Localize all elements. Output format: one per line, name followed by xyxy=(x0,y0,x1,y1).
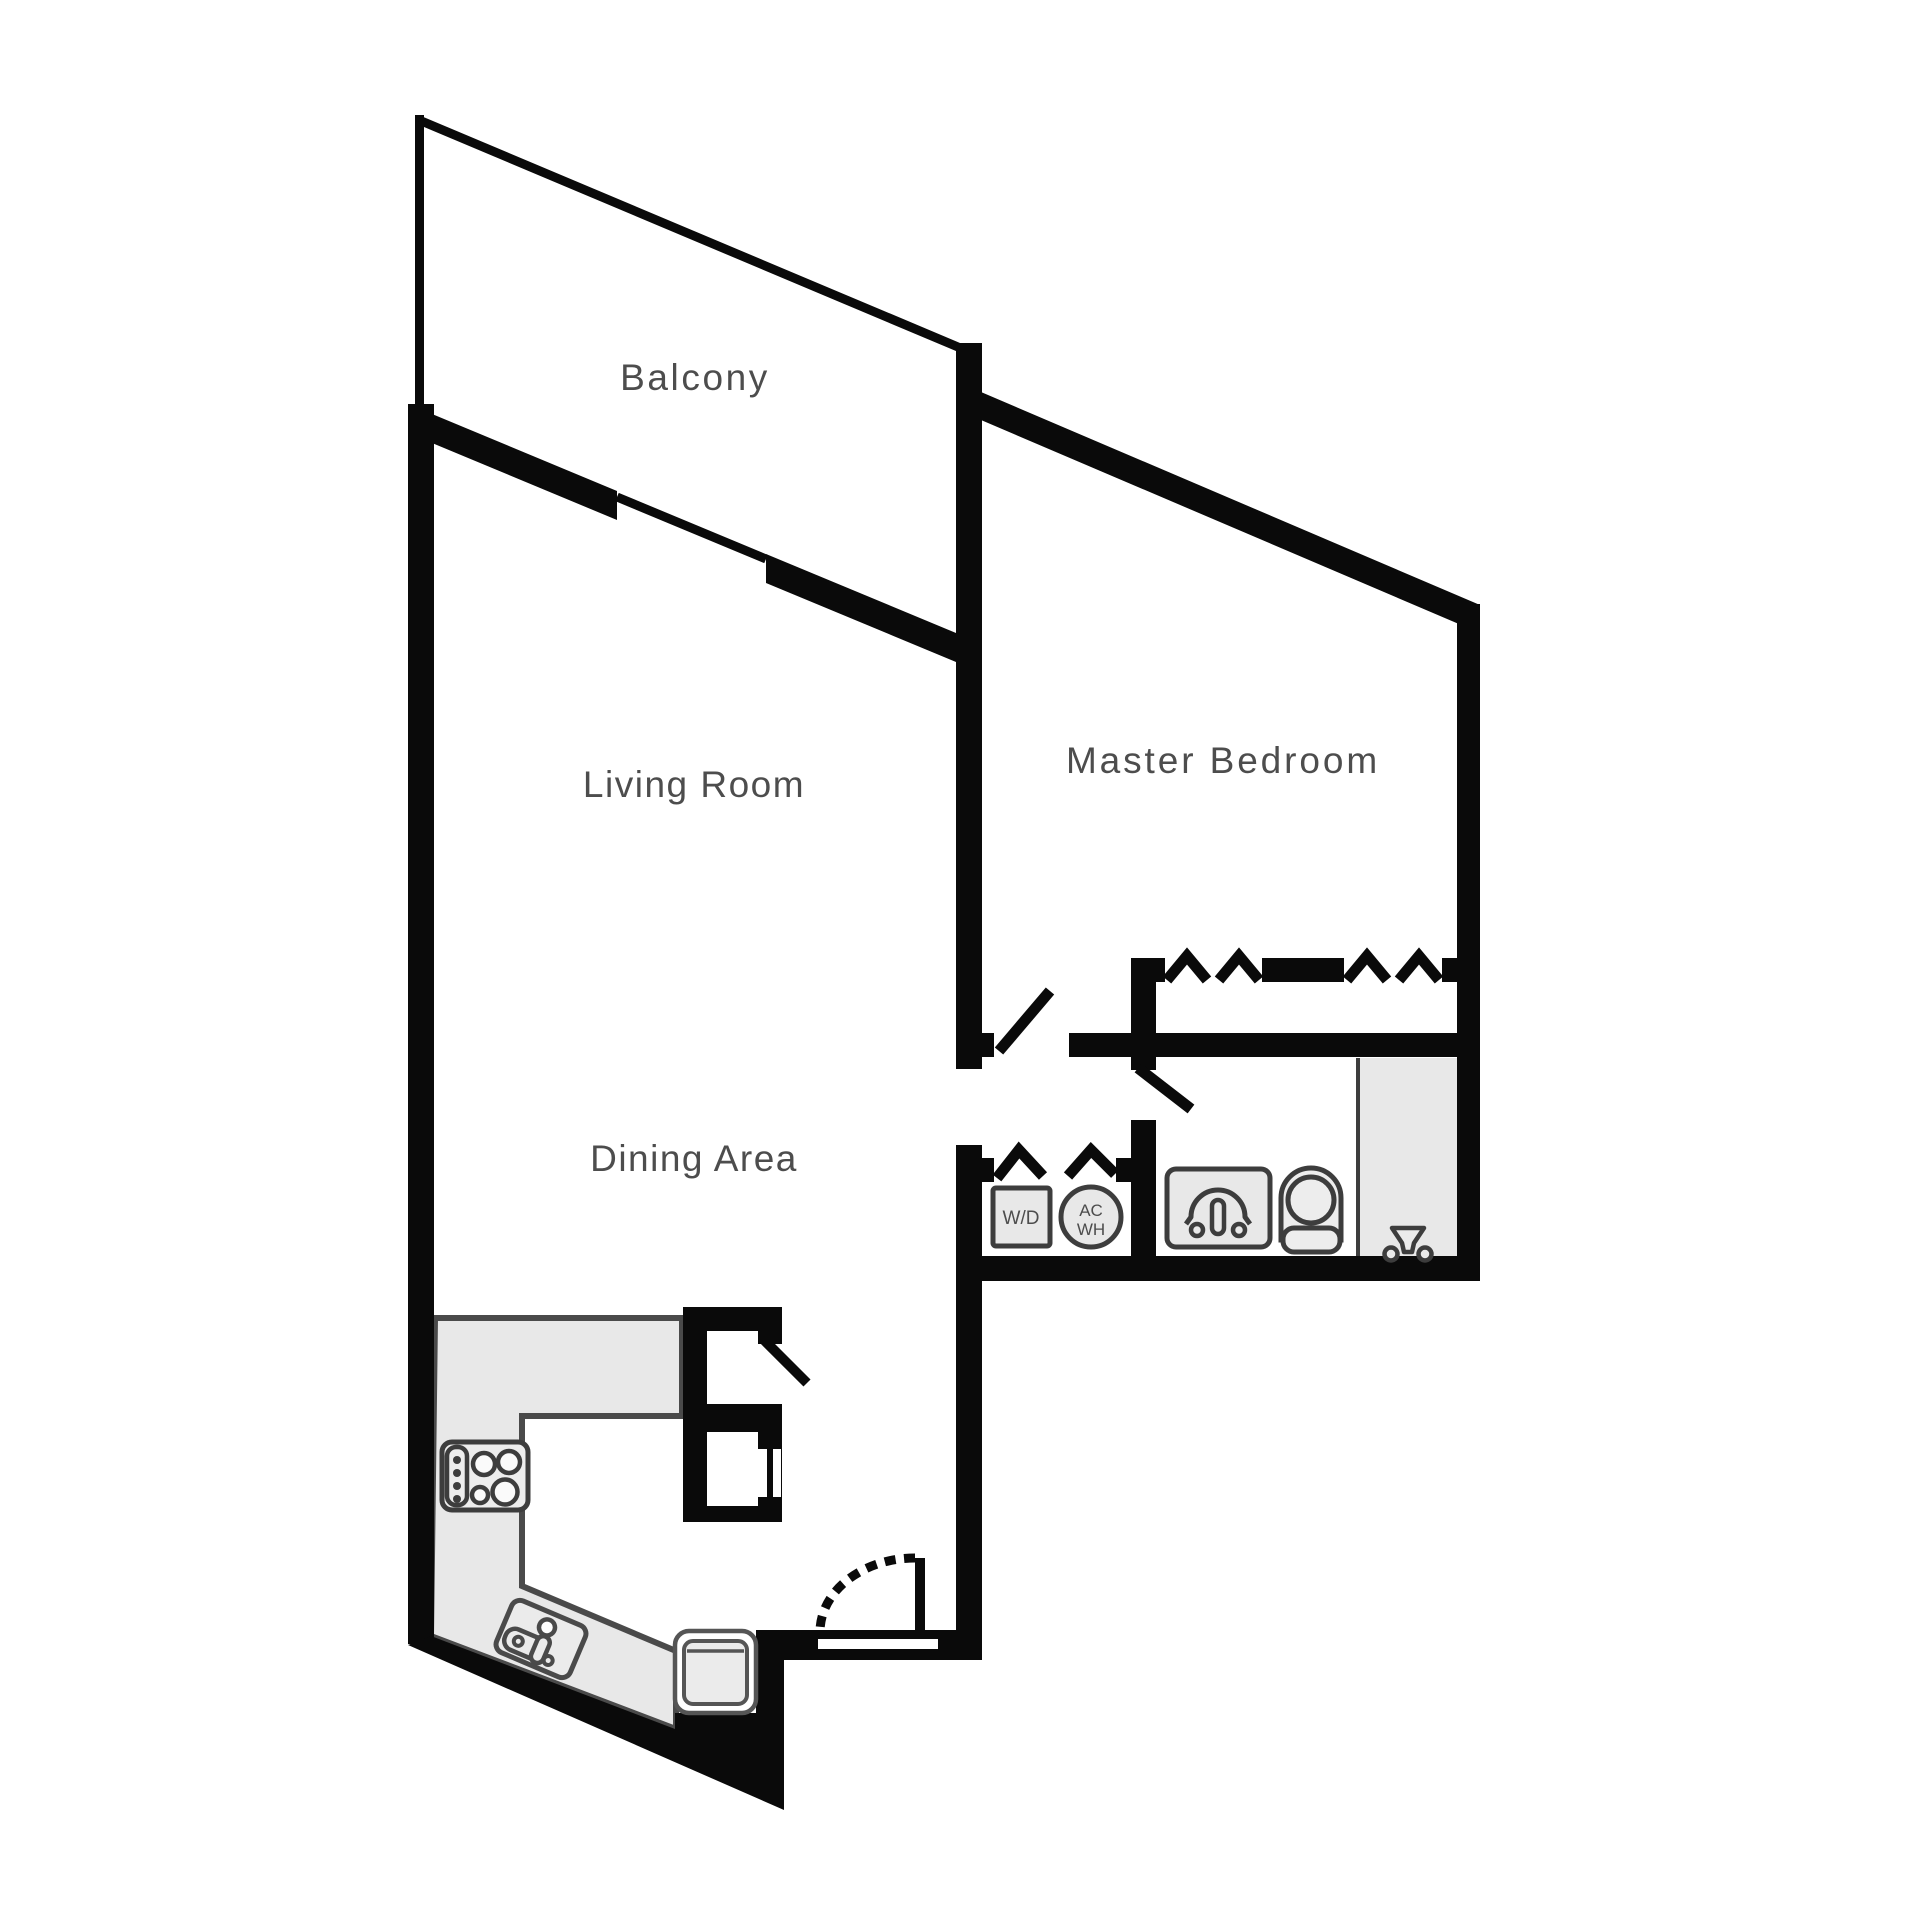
svg-text:W/D: W/D xyxy=(1003,1208,1040,1229)
svg-text:Balcony: Balcony xyxy=(620,357,770,398)
svg-text:Master Bedroom: Master Bedroom xyxy=(1066,740,1380,781)
svg-text:Living Room: Living Room xyxy=(583,764,805,805)
svg-text:AC: AC xyxy=(1079,1201,1103,1220)
svg-text:WH: WH xyxy=(1077,1220,1105,1239)
svg-text:Dining Area: Dining Area xyxy=(590,1138,798,1179)
